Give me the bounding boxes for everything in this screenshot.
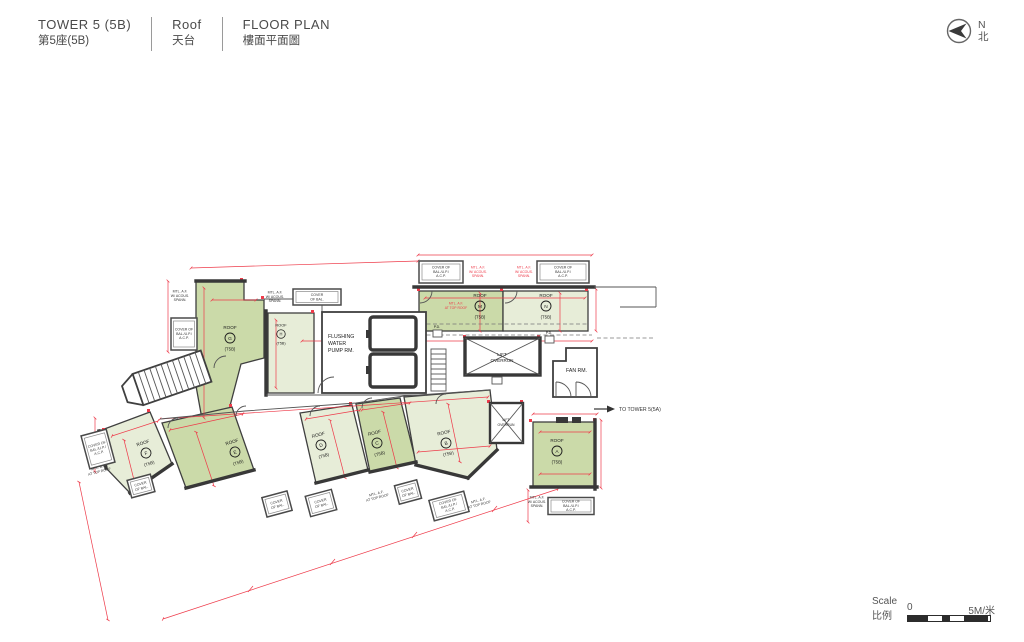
scale-label-zh: 比例 (872, 607, 897, 622)
svg-text:SPANN.: SPANN. (531, 504, 544, 508)
roof-label-n: ROOFN(T5B) (539, 293, 552, 320)
svg-text:ROOF: ROOF (550, 438, 563, 443)
cover-box: COVER OF BAL. (262, 491, 292, 517)
floor-plan-drawing: COVER OF BAL./U.P./ A.C.P. COVER OF BAL.… (0, 0, 1024, 642)
pd-label: P.D. (434, 325, 441, 329)
svg-text:H: H (280, 332, 283, 337)
roof-label-g: ROOFG(T5B) (223, 325, 236, 352)
svg-text:A.C.P.: A.C.P. (566, 508, 576, 512)
svg-text:OF BAL.: OF BAL. (310, 298, 323, 302)
scale-zero: 0 (907, 602, 913, 613)
svg-text:SPANN.: SPANN. (518, 274, 530, 278)
cover-box: COVER OF BAL./U.P./ A.C.P. (537, 261, 589, 283)
to-tower-label: TO TOWER 5(5A) (619, 407, 661, 413)
cover-box: COVER OF BAL./U.P./ A.C.P. (171, 318, 197, 350)
svg-text:SPANN.: SPANN. (174, 298, 187, 302)
stair-hexagon (119, 351, 211, 410)
svg-text:A.C.P.: A.C.P. (436, 274, 446, 278)
svg-text:G: G (228, 336, 232, 342)
stair-core (431, 349, 446, 391)
svg-text:A.C.P.: A.C.P. (558, 274, 568, 278)
svg-text:ROOF: ROOF (275, 322, 287, 327)
cover-box: COVER OF BAL./U.P./ A.C.P. (419, 261, 463, 283)
scale-bar: Scale 比例 0 5M/米 (872, 596, 991, 622)
pump-room-label-2: WATER (328, 341, 346, 347)
svg-text:N: N (544, 304, 548, 310)
roof-e-area (162, 407, 254, 488)
svg-text:AT TOP ROOF: AT TOP ROOF (445, 306, 467, 310)
svg-text:(T5B): (T5B) (475, 315, 486, 320)
brochure-page: TOWER 5 (5B) 第5座(5B) Roof 天台 FLOOR PLAN … (0, 0, 1024, 642)
lift-overrun-small-label-1: LIFT (503, 418, 510, 422)
cover-box: COVER OF BAL. (293, 289, 341, 305)
svg-text:ROOF: ROOF (473, 293, 486, 298)
svg-text:ROOF: ROOF (223, 325, 236, 330)
roof-label-m: ROOFM(T5B) (473, 293, 486, 320)
svg-text:SPANN.: SPANN. (269, 299, 282, 303)
pd-label: P.D. (546, 331, 553, 335)
cover-box: COVER OF BAL. (394, 480, 421, 504)
svg-text:A.C.P.: A.C.P. (179, 336, 189, 340)
fan-room-label: FAN RM. (566, 368, 587, 374)
pump-room-label-1: FLUSHING (328, 334, 354, 340)
scale-max: 5M/米 (968, 602, 995, 617)
lift-overrun-label-1: LIFT (497, 352, 507, 357)
cover-box: COVER OF BAL./U.P./ A.C.P. (429, 491, 469, 521)
svg-text:ROOF: ROOF (539, 293, 552, 298)
svg-text:(T5B): (T5B) (552, 460, 563, 465)
scale-label-en: Scale (872, 596, 897, 607)
to-tower-arrow: TO TOWER 5(5A) (594, 406, 661, 414)
svg-text:COVER: COVER (311, 293, 324, 297)
roof-m-area (419, 291, 503, 331)
svg-text:(T5B): (T5B) (225, 347, 236, 352)
lift-overrun-small-label-2: OVERRUN (498, 423, 516, 427)
cover-box: COVER OF BAL. (305, 489, 337, 516)
svg-text:M: M (478, 304, 482, 310)
svg-text:(T5B): (T5B) (276, 342, 285, 346)
svg-text:SPANN.: SPANN. (472, 274, 484, 278)
cover-box: COVER OF BAL./U.P./ A.C.P. (548, 498, 594, 515)
pump-room-label-3: PUMP RM. (328, 348, 354, 354)
roof-label-a: ROOFA(T5B) (550, 438, 563, 465)
svg-text:(T5B): (T5B) (541, 315, 552, 320)
lift-overrun-label-2: OVERRUN (491, 358, 514, 363)
